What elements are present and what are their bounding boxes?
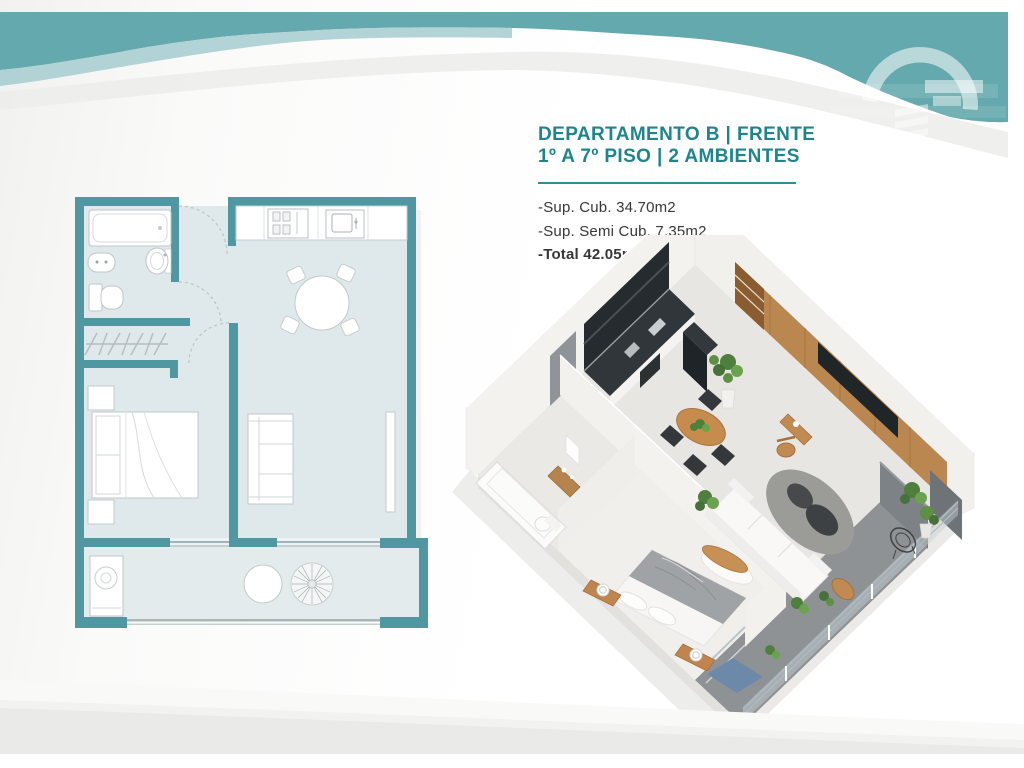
balcony-round-table [244,565,282,603]
washing-machine [90,556,123,616]
footer-white-strip [0,754,1024,768]
listing-title-line2: 1º A 7º PISO | 2 AMBIENTES [538,146,838,168]
kitchen-counter [236,206,407,240]
cooktop [268,209,308,238]
logo-glow-band [838,84,998,98]
bathtub [89,210,171,246]
logo-glow-band-2 [830,106,1006,118]
sofa [248,414,293,504]
brochure-page: DEPARTAMENTO B | FRENTE 1º A 7º PISO | 2… [0,0,1024,768]
potted-plant [291,563,333,605]
double-bed [92,412,198,498]
floor-plan-2d [60,185,440,640]
tv-unit [386,412,395,512]
wall-sink [146,248,171,274]
nightstand [88,500,114,524]
listing-title-line1: DEPARTAMENTO B | FRENTE [538,124,838,146]
plan-shadow [416,210,421,540]
header-wave-band [0,0,1024,200]
title-divider [538,182,796,184]
detail-sup-cub: -Sup. Cub. 34.70m2 [538,196,838,220]
footer-wave-band [0,648,1024,768]
kitchen-sink [326,210,364,238]
toilet [89,284,123,311]
nightstand [88,386,114,410]
round-dining-table [295,276,349,330]
bidet [88,253,115,272]
